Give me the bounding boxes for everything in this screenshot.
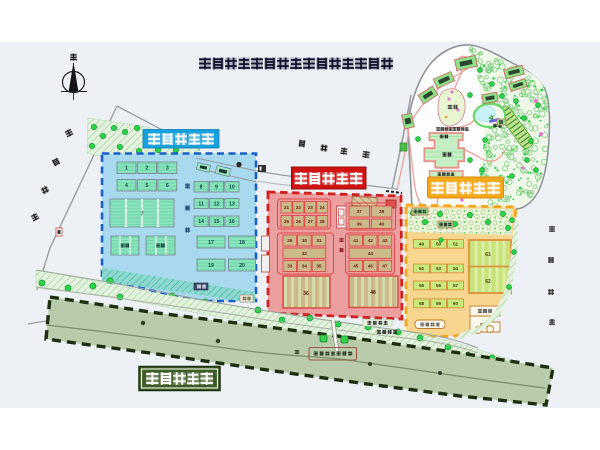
svg-text:16: 16 [229, 219, 235, 225]
svg-text:28: 28 [320, 219, 326, 224]
svg-text:21: 21 [284, 205, 290, 210]
svg-text:13: 13 [229, 201, 235, 207]
svg-text:52: 52 [419, 266, 425, 271]
svg-text:20: 20 [239, 263, 245, 269]
svg-text:53: 53 [436, 266, 442, 271]
svg-text:6: 6 [166, 183, 169, 189]
svg-text:24: 24 [320, 205, 326, 210]
svg-text:3: 3 [166, 166, 169, 172]
svg-text:36: 36 [303, 291, 309, 297]
svg-text:42: 42 [368, 238, 374, 243]
svg-text:39: 39 [357, 221, 363, 226]
svg-text:1: 1 [125, 166, 128, 172]
svg-text:38: 38 [379, 209, 385, 214]
svg-text:58: 58 [419, 301, 425, 306]
svg-text:48: 48 [370, 290, 376, 296]
svg-text:9: 9 [215, 185, 218, 191]
svg-text:11: 11 [198, 201, 204, 207]
svg-text:55: 55 [419, 283, 425, 288]
svg-text:23: 23 [308, 205, 314, 210]
svg-text:40: 40 [379, 221, 385, 226]
svg-text:22: 22 [296, 205, 302, 210]
svg-text:7: 7 [140, 212, 143, 218]
svg-text:59: 59 [436, 301, 442, 306]
svg-text:44: 44 [368, 251, 374, 256]
svg-text:35: 35 [316, 264, 322, 269]
svg-text:32: 32 [302, 251, 308, 256]
svg-text:12: 12 [214, 201, 220, 207]
svg-text:14: 14 [198, 219, 204, 225]
svg-text:47: 47 [382, 264, 388, 269]
svg-text:33: 33 [287, 264, 293, 269]
svg-text:43: 43 [382, 238, 388, 243]
svg-text:45: 45 [353, 264, 359, 269]
svg-text:4: 4 [125, 183, 128, 189]
svg-text:19: 19 [208, 263, 214, 269]
svg-text:15: 15 [214, 219, 220, 225]
svg-text:2: 2 [145, 166, 148, 172]
svg-text:49: 49 [419, 242, 425, 247]
svg-text:8: 8 [200, 185, 203, 191]
svg-text:30: 30 [302, 238, 308, 243]
svg-text:10: 10 [229, 185, 235, 191]
svg-text:25: 25 [284, 219, 290, 224]
svg-text:37: 37 [357, 209, 363, 214]
svg-text:18: 18 [239, 240, 245, 246]
svg-text:54: 54 [453, 266, 459, 271]
svg-text:60: 60 [453, 301, 459, 306]
svg-text:41: 41 [353, 238, 359, 243]
svg-text:31: 31 [316, 238, 322, 243]
svg-text:29: 29 [287, 238, 293, 243]
svg-text:51: 51 [453, 242, 459, 247]
svg-text:5: 5 [145, 183, 148, 189]
svg-text:27: 27 [308, 219, 314, 224]
svg-text:26: 26 [296, 219, 302, 224]
svg-text:34: 34 [302, 264, 308, 269]
svg-text:61: 61 [485, 252, 491, 258]
svg-text:62: 62 [485, 279, 491, 285]
svg-text:46: 46 [368, 264, 374, 269]
svg-text:17: 17 [208, 240, 214, 246]
svg-text:57: 57 [453, 283, 459, 288]
svg-text:56: 56 [436, 283, 442, 288]
